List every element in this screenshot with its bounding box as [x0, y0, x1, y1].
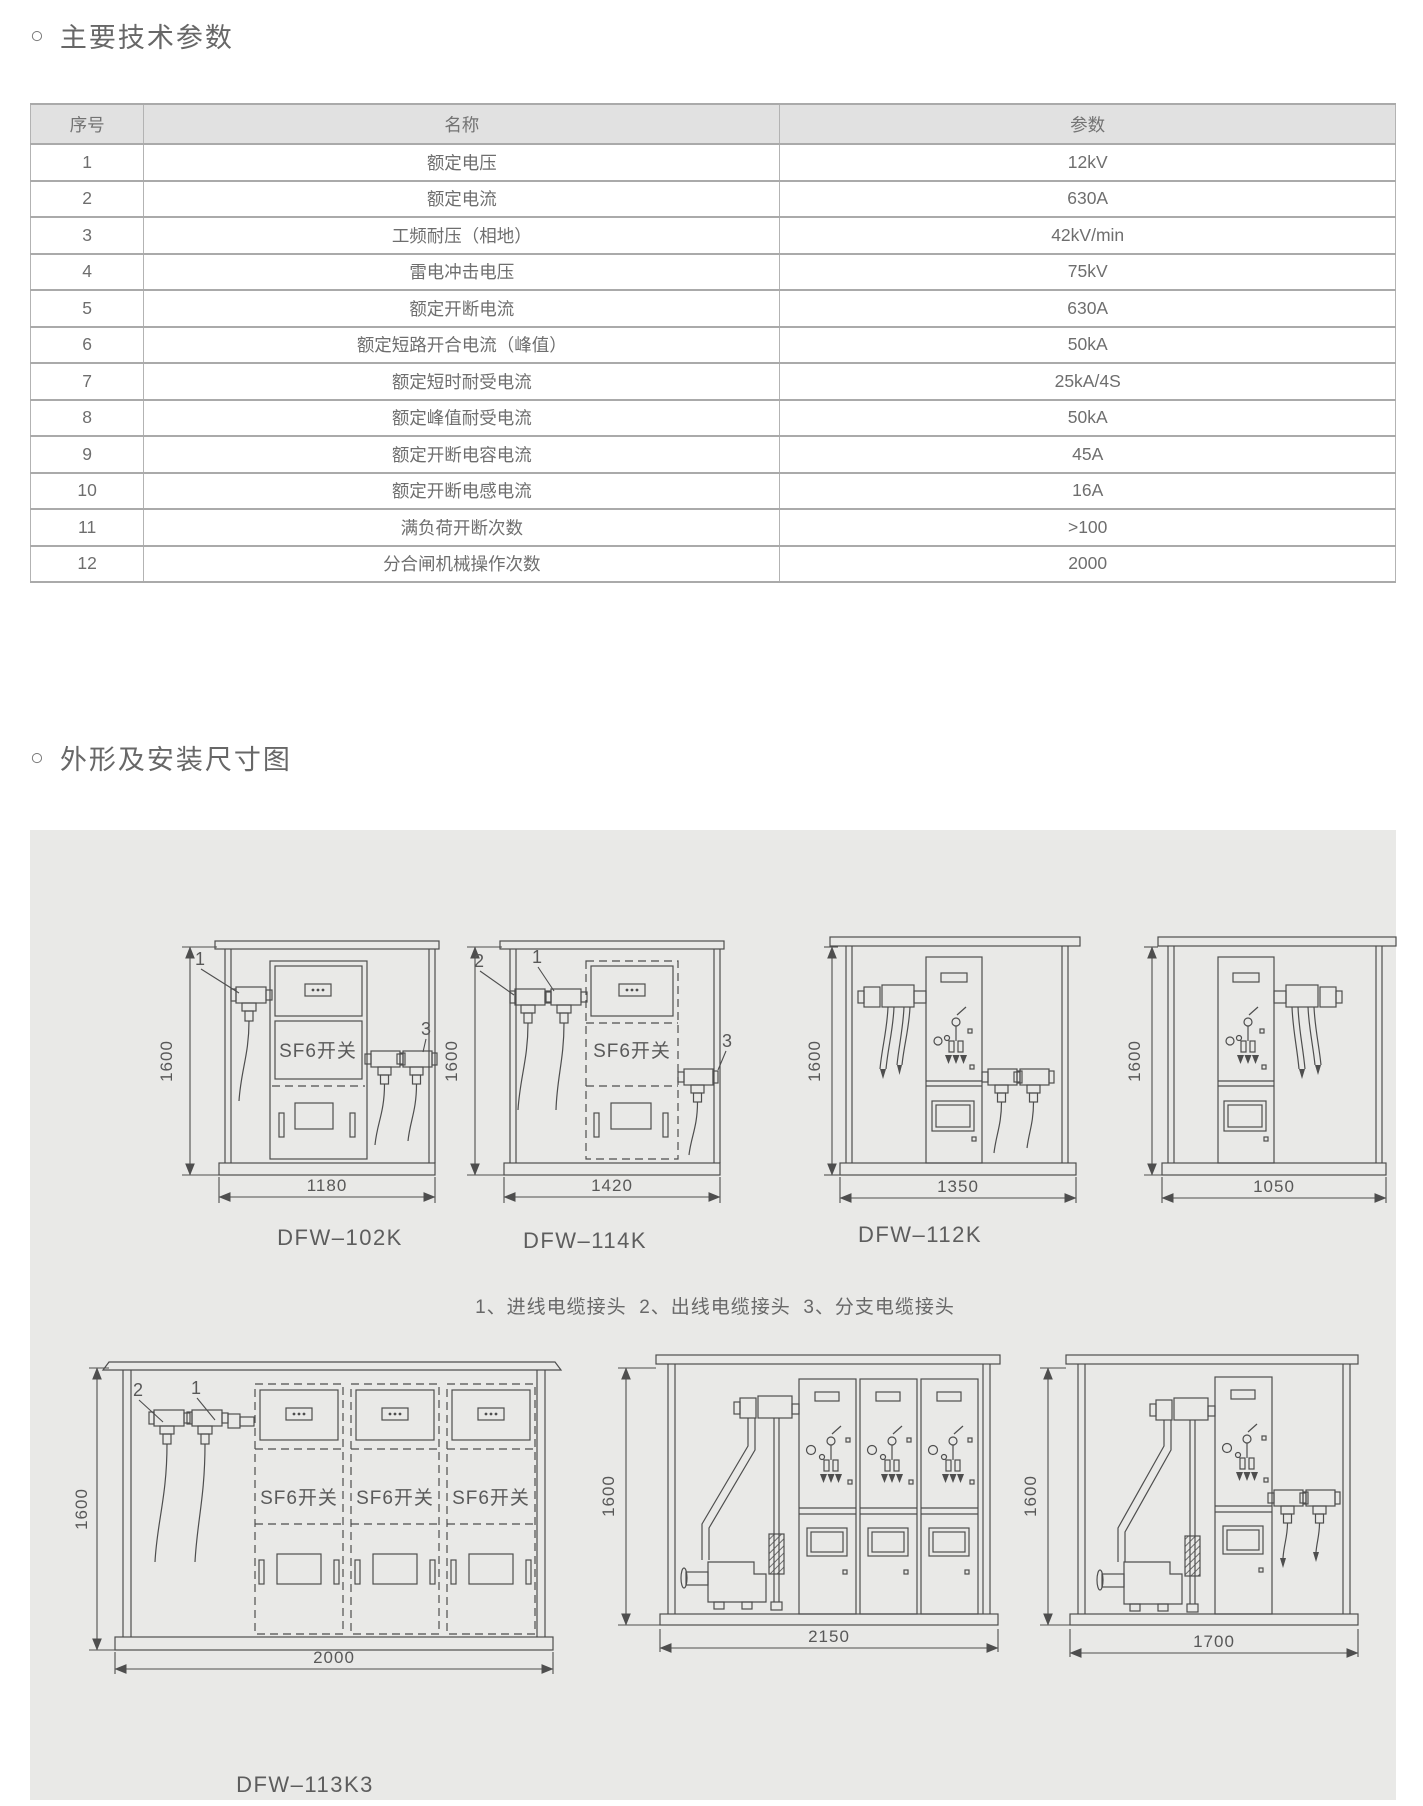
- table-row: 9额定开断电容电流45A: [31, 436, 1396, 473]
- incoming-cable-connector: 1: [187, 1378, 254, 1562]
- cell-no: 10: [31, 473, 144, 510]
- switch-unit: SF6开关: [270, 961, 367, 1159]
- section1-title-text: 主要技术参数: [60, 16, 234, 55]
- callout-2: 2: [133, 1380, 143, 1400]
- table-row: 4雷电冲击电压75kV: [31, 254, 1396, 291]
- switch-unit: [921, 1379, 978, 1614]
- cell-name: 额定电压: [144, 144, 780, 181]
- section2-title-text: 外形及安装尺寸图: [60, 738, 292, 777]
- cell-no: 9: [31, 436, 144, 473]
- indicator-window-icon: [286, 1408, 312, 1420]
- table-row: 7额定短时耐受电流25kA/4S: [31, 363, 1396, 400]
- switch-unit: [1218, 957, 1274, 1163]
- callout-2: 2: [474, 951, 484, 971]
- cell-no: 8: [31, 400, 144, 437]
- load-switch-symbol-icon: [1237, 1007, 1260, 1064]
- cell-value: 630A: [780, 290, 1396, 327]
- col-header-no: 序号: [31, 104, 144, 144]
- cell-value: 630A: [780, 181, 1396, 218]
- sf6-switch-label: SF6开关: [260, 1487, 338, 1509]
- switch-unit: [926, 957, 982, 1163]
- drawing-dfw-112k-side: 1600: [1130, 905, 1420, 1245]
- cell-name: 额定开断电容电流: [144, 436, 780, 473]
- height-dimension: 1600: [157, 947, 219, 1175]
- branch-cable-connector: 3: [678, 1031, 732, 1155]
- width-dim-label: 2000: [313, 1648, 355, 1667]
- height-dimension: 1600: [805, 947, 840, 1175]
- cell-no: 5: [31, 290, 144, 327]
- load-switch-symbol-icon: [820, 1426, 843, 1483]
- height-dim-label: 1600: [1125, 1040, 1144, 1082]
- switch-compartment: SF6开关: [351, 1384, 439, 1634]
- cell-value: 16A: [780, 473, 1396, 510]
- cell-name: 额定开断电流: [144, 290, 780, 327]
- section-title-dimensions: ○ 外形及安装尺寸图: [30, 738, 292, 777]
- col-header-param: 参数: [780, 104, 1396, 144]
- width-dimension: 2000: [115, 1648, 553, 1674]
- table-header-row: 序号 名称 参数: [31, 104, 1396, 144]
- drawing-unit-2150: 1600: [590, 1322, 1040, 1677]
- width-dim-label: 1050: [1253, 1177, 1295, 1196]
- width-dim-label: 1700: [1193, 1632, 1235, 1651]
- cable-elbow-and-terminator: [681, 1396, 799, 1610]
- cell-value: 12kV: [780, 144, 1396, 181]
- switch-unit: [860, 1379, 917, 1614]
- cell-value: 25kA/4S: [780, 363, 1396, 400]
- cell-value: >100: [780, 509, 1396, 546]
- height-dim-label: 1600: [599, 1475, 618, 1517]
- cell-no: 1: [31, 144, 144, 181]
- cell-name: 额定电流: [144, 181, 780, 218]
- height-dim-label: 1600: [805, 1040, 824, 1082]
- load-switch-symbol-icon: [1236, 1424, 1259, 1481]
- table-row: 10额定开断电感电流16A: [31, 473, 1396, 510]
- height-dimension: 1600: [1125, 947, 1162, 1175]
- callout-1: 1: [195, 949, 205, 969]
- height-dimension: 1600: [1021, 1368, 1070, 1625]
- catalog-page: ○ 主要技术参数 序号 名称 参数 1额定电压12kV 2额定电流630A 3工…: [0, 0, 1423, 1806]
- outgoing-cables: [1274, 985, 1342, 1079]
- cell-name: 分合闸机械操作次数: [144, 546, 780, 583]
- branch-cable-connectors: 3: [365, 1019, 437, 1145]
- cell-no: 4: [31, 254, 144, 291]
- table-row: 11满负荷开断次数>100: [31, 509, 1396, 546]
- cell-value: 50kA: [780, 400, 1396, 437]
- width-dimension: 1350: [840, 1177, 1076, 1203]
- width-dim-label: 2150: [808, 1627, 850, 1646]
- cell-no: 11: [31, 509, 144, 546]
- width-dim-label: 1180: [307, 1176, 348, 1195]
- table-row: 5额定开断电流630A: [31, 290, 1396, 327]
- width-dim-label: 1350: [937, 1177, 979, 1196]
- sf6-switch-label: SF6开关: [356, 1487, 434, 1509]
- indicator-window-icon: [305, 984, 331, 996]
- branch-cable-connectors: [1268, 1490, 1340, 1568]
- sf6-switch-label: SF6开关: [279, 1040, 357, 1062]
- indicator-window-icon: [478, 1408, 504, 1420]
- width-dimension: 2150: [660, 1627, 998, 1652]
- cell-name: 额定峰值耐受电流: [144, 400, 780, 437]
- width-dimension: 1700: [1070, 1629, 1358, 1657]
- outgoing-cable-connector: 2: [133, 1380, 190, 1562]
- cable-joint-legend: 1、进线电缆接头 2、出线电缆接头 3、分支电缆接头: [475, 1292, 955, 1319]
- col-header-name: 名称: [144, 104, 780, 144]
- cell-no: 6: [31, 327, 144, 364]
- width-dimension: 1050: [1162, 1177, 1386, 1203]
- caption-dfw-114k: DFW–114K: [523, 1228, 647, 1254]
- drawing-dfw-114k: 1600 SF6开关 2: [430, 905, 770, 1235]
- cable-elbow-and-terminator: [1097, 1398, 1215, 1612]
- indicator-window-icon: [619, 984, 645, 996]
- branch-cable-connectors: [982, 1069, 1054, 1153]
- cell-name: 工频耐压（相地）: [144, 217, 780, 254]
- parameters-table: 序号 名称 参数 1额定电压12kV 2额定电流630A 3工频耐压（相地）42…: [30, 103, 1396, 583]
- load-switch-symbol-icon: [881, 1426, 904, 1483]
- cabinet-outline: [1158, 937, 1396, 1175]
- load-switch-symbol-icon: [942, 1426, 965, 1483]
- cell-no: 3: [31, 217, 144, 254]
- switch-unit: [1215, 1377, 1272, 1614]
- load-switch-symbol-icon: [945, 1007, 968, 1064]
- circle-bullet-icon: ○: [30, 744, 46, 771]
- caption-dfw-112k: DFW–112K: [858, 1222, 982, 1248]
- incoming-cable-connector: 1: [195, 949, 272, 1101]
- cell-no: 12: [31, 546, 144, 583]
- switch-unit: [799, 1379, 856, 1614]
- dimension-drawings-panel: 1600 SF6开关 1: [30, 830, 1396, 1800]
- incoming-cables: [858, 985, 926, 1079]
- callout-1: 1: [191, 1378, 201, 1398]
- table-row: 8额定峰值耐受电流50kA: [31, 400, 1396, 437]
- outgoing-cable-connector: 2: [474, 951, 551, 1110]
- cell-name: 额定短时耐受电流: [144, 363, 780, 400]
- cell-value: 42kV/min: [780, 217, 1396, 254]
- circle-bullet-icon: ○: [30, 22, 46, 49]
- cell-no: 7: [31, 363, 144, 400]
- table-row: 6额定短路开合电流（峰值）50kA: [31, 327, 1396, 364]
- table-row: 3工频耐压（相地）42kV/min: [31, 217, 1396, 254]
- callout-1: 1: [532, 947, 542, 967]
- height-dim-label: 1600: [157, 1040, 176, 1082]
- drawing-dfw-112k-front: 1600: [800, 905, 1120, 1245]
- drawing-unit-1700: 1600: [1020, 1322, 1420, 1702]
- table-row: 1额定电压12kV: [31, 144, 1396, 181]
- height-dim-label: 1600: [72, 1488, 91, 1530]
- cell-name: 额定短路开合电流（峰值）: [144, 327, 780, 364]
- caption-dfw-113k3: DFW–113K3: [236, 1772, 374, 1798]
- cell-value: 75kV: [780, 254, 1396, 291]
- callout-3: 3: [722, 1031, 732, 1051]
- drawing-dfw-113k3: 1600 2 1: [75, 1322, 595, 1682]
- caption-dfw-102k: DFW–102K: [277, 1225, 403, 1251]
- width-dimension: 1180: [219, 1176, 435, 1203]
- incoming-cable-connector: 1: [532, 947, 587, 1110]
- cell-value: 45A: [780, 436, 1396, 473]
- cell-no: 2: [31, 181, 144, 218]
- sf6-switch-label: SF6开关: [593, 1040, 671, 1062]
- height-dim-label: 1600: [442, 1040, 461, 1082]
- height-dimension: 1600: [72, 1368, 115, 1650]
- table-row: 12分合闸机械操作次数2000: [31, 546, 1396, 583]
- sf6-switch-label: SF6开关: [452, 1487, 530, 1509]
- height-dimension: 1600: [599, 1368, 660, 1625]
- table-row: 2额定电流630A: [31, 181, 1396, 218]
- switch-unit: SF6开关: [586, 961, 678, 1159]
- switch-compartment: SF6开关: [447, 1384, 535, 1634]
- cell-name: 雷电冲击电压: [144, 254, 780, 291]
- switch-compartment: SF6开关: [255, 1384, 343, 1634]
- cell-name: 额定开断电感电流: [144, 473, 780, 510]
- cell-value: 2000: [780, 546, 1396, 583]
- height-dim-label: 1600: [1021, 1475, 1040, 1517]
- width-dim-label: 1420: [591, 1176, 633, 1195]
- indicator-window-icon: [382, 1408, 408, 1420]
- cell-value: 50kA: [780, 327, 1396, 364]
- section-title-params: ○ 主要技术参数: [30, 16, 234, 55]
- cell-name: 满负荷开断次数: [144, 509, 780, 546]
- width-dimension: 1420: [504, 1176, 720, 1203]
